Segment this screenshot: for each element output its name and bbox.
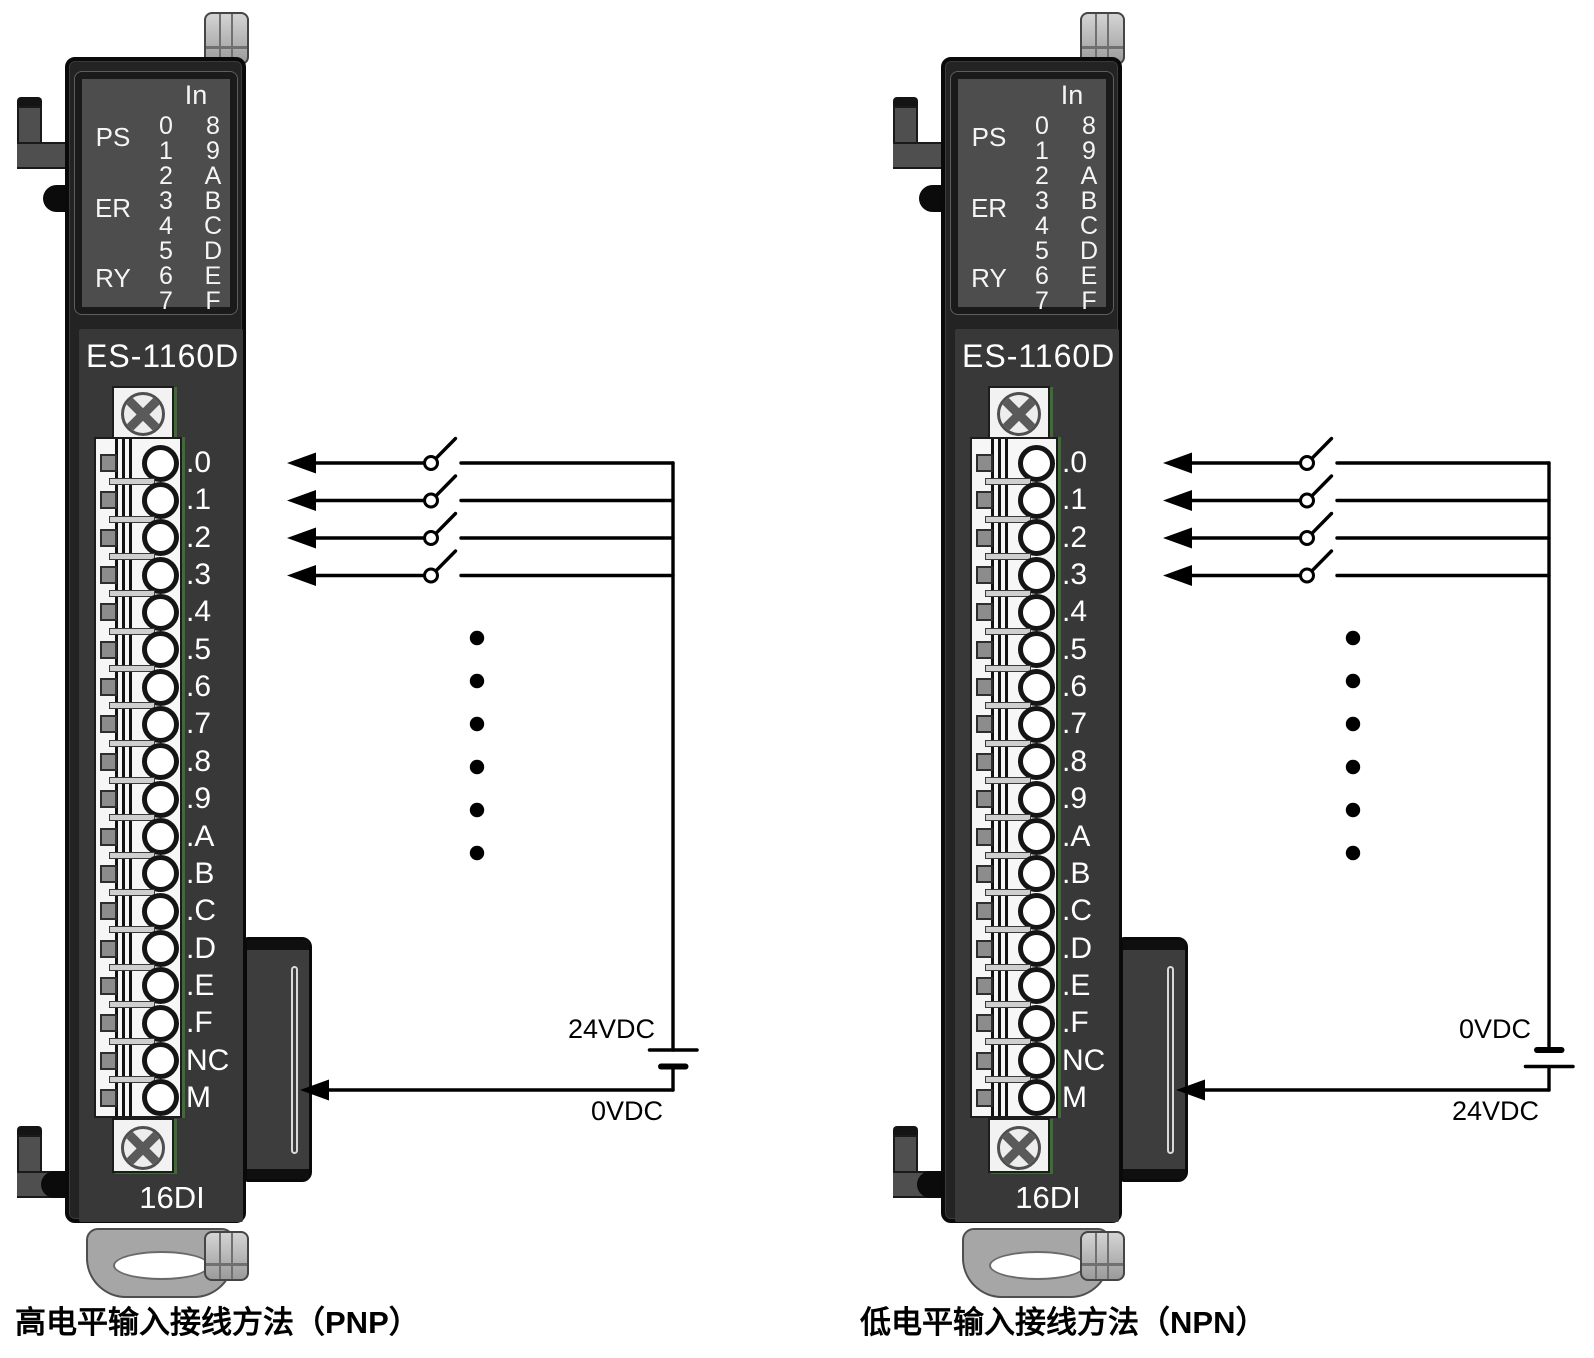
terminal-label: .1 [1062,480,1138,520]
terminal-clamp [976,603,993,621]
led-status-ry: RY [89,263,137,294]
terminal-divider [985,553,1031,560]
terminal-divider [985,852,1031,859]
terminal-divider [109,628,155,635]
led-indicator-panel: In PS ER RY 01234567 89ABCDEF [951,72,1113,314]
terminal-hole [1018,445,1055,482]
terminal-divider [109,889,155,896]
terminal-clamp [100,940,117,958]
terminal-hole [142,1042,179,1079]
terminal-divider [109,814,155,821]
terminal-hole [1018,482,1055,519]
terminal-clamp [976,678,993,696]
terminal-clamp [100,529,117,547]
terminal-divider [985,926,1031,933]
terminal-label: .1 [186,480,262,520]
terminal-divider [985,628,1031,635]
terminal-hole [142,1005,179,1042]
terminal-clamp [100,828,117,846]
terminal-clamp [100,491,117,509]
terminal-clamp [100,678,117,696]
terminal-hole [142,855,179,892]
led-column-8-F: 89ABCDEF [1065,72,1113,314]
terminal-label: .C [1062,891,1138,931]
terminal-divider [985,1076,1031,1083]
ellipsis-dot [470,760,484,774]
switch-hinge [425,494,438,507]
terminal-clamp [976,566,993,584]
terminal-clamp [100,1052,117,1070]
terminal-label: .A [1062,817,1138,857]
terminal-clamp [976,1052,993,1070]
terminal-hole [1018,706,1055,743]
terminal-clamp [100,454,117,472]
bottom-hook-hole [113,1251,210,1280]
terminal-hole [142,1079,179,1116]
terminal-divider [985,1038,1031,1045]
terminal-label: .2 [186,518,262,558]
terminal-clamp [976,1089,993,1107]
ellipsis-dot [1346,803,1360,817]
wiring-diagram-page: 高电平输入接线方法（PNP） 低电平输入接线方法（NPN） [0,0,1594,1358]
connector-lip [247,1169,309,1179]
terminal-hole [1018,669,1055,706]
terminal-hole [142,930,179,967]
terminal-divider [109,777,155,784]
terminal-label: .9 [1062,779,1138,819]
ellipsis-dot [1346,760,1360,774]
wiring-diagram-npn: In PS ER RY 01234567 89ABCDEF ES-1160D 1… [876,0,1594,1358]
terminal-clamp [100,641,117,659]
switch-hinge [425,532,438,545]
terminal-label: .8 [1062,742,1138,782]
terminal-hole [1018,631,1055,668]
terminal-hole [1018,930,1055,967]
terminal-label: .4 [186,592,262,632]
terminal-screw-top [988,386,1050,439]
screw-icon [997,1126,1041,1170]
terminal-clamp [100,566,117,584]
terminal-screw-bottom [988,1118,1050,1173]
terminal-label: .0 [186,443,262,483]
ellipsis-dot [470,674,484,688]
terminal-clamp [976,865,993,883]
terminal-label: .C [186,891,262,931]
terminal-clamp [976,529,993,547]
terminal-label: NC [186,1041,262,1081]
terminal-divider [109,1076,155,1083]
led-status-ps: PS [89,122,137,153]
terminal-divider [985,889,1031,896]
terminal-clamp [976,828,993,846]
switch-hinge [425,457,438,470]
terminal-divider [109,740,155,747]
terminal-label: .E [186,966,262,1006]
terminal-divider [985,590,1031,597]
connector-lip [1123,1169,1185,1179]
terminal-label: .7 [186,704,262,744]
input-arrowhead [287,528,316,549]
terminal-divider [109,926,155,933]
terminal-hole [142,893,179,930]
input-arrowhead [1163,528,1192,549]
led-status-ps: PS [965,122,1013,153]
terminal-clamp [100,902,117,920]
terminal-hole [142,519,179,556]
switch-blade [1312,439,1332,459]
ellipsis-dot [1346,674,1360,688]
led-column-8-F: 89ABCDEF [189,72,237,314]
switch-hinge [1301,494,1314,507]
terminal-divider [985,740,1031,747]
terminal-label: NC [1062,1041,1138,1081]
bottom-hook-hole [989,1251,1086,1280]
wiring-diagram-pnp: In PS ER RY 01234567 89ABCDEF ES-1160D 1… [0,0,718,1358]
terminal-divider [109,590,155,597]
terminal-clamp [100,1089,117,1107]
model-label: ES-1160D [962,338,1132,375]
terminal-hole [1018,818,1055,855]
module-type-label: 16DI [108,1180,236,1216]
switch-blade [1312,476,1332,496]
terminal-hole [142,706,179,743]
terminal-hole [142,594,179,631]
module-type-label: 16DI [984,1180,1112,1216]
terminal-divider [109,553,155,560]
terminal-divider [109,478,155,485]
mounting-bolt-bottom [204,1231,249,1281]
terminal-label: .B [1062,854,1138,894]
terminal-label: .6 [186,667,262,707]
terminal-label: .B [186,854,262,894]
terminal-hole [142,557,179,594]
screw-icon [121,392,165,436]
terminal-divider [985,478,1031,485]
terminal-label: .4 [1062,592,1138,632]
terminal-label: .8 [186,742,262,782]
model-label: ES-1160D [86,338,256,375]
terminal-divider [985,665,1031,672]
terminal-clamp [100,790,117,808]
led-status-ry: RY [965,263,1013,294]
terminal-label: .9 [186,779,262,819]
terminal-divider [985,964,1031,971]
terminal-divider [985,814,1031,821]
terminal-divider [985,1001,1031,1008]
terminal-clamp [100,977,117,995]
terminal-label: M [186,1078,262,1118]
switch-hinge [1301,457,1314,470]
terminal-clamp [976,1014,993,1032]
terminal-hole [1018,557,1055,594]
mounting-bolt-bottom [1080,1231,1125,1281]
terminal-clamp [976,641,993,659]
terminal-block [94,437,182,1118]
connector-slot [1167,966,1174,1154]
terminal-clamp [100,1014,117,1032]
terminal-clamp [976,753,993,771]
terminal-divider [109,702,155,709]
terminal-clamp [976,977,993,995]
terminal-clamp [100,715,117,733]
led-status-er: ER [965,193,1013,224]
led-digit: 7 [1018,287,1066,316]
terminal-label: M [1062,1078,1138,1118]
terminal-divider [109,516,155,523]
terminal-label: .D [186,929,262,969]
terminal-hole [1018,519,1055,556]
terminal-hole [1018,743,1055,780]
clip-arm [893,142,948,169]
terminal-hole [142,669,179,706]
terminal-divider [985,516,1031,523]
supply-label-top: 24VDC [530,1014,655,1045]
led-column-0-7: 01234567 [142,72,190,314]
terminal-hole [142,967,179,1004]
terminal-divider [109,665,155,672]
screw-icon [121,1126,165,1170]
terminal-hole [142,445,179,482]
supply-label-bottom: 24VDC [1421,1096,1539,1127]
terminal-divider [109,1001,155,1008]
ellipsis-dot [1346,717,1360,731]
input-arrowhead [1163,453,1192,474]
led-column-0-7: 01234567 [1018,72,1066,314]
terminal-clamp [976,902,993,920]
terminal-hole [142,631,179,668]
terminal-label: .D [1062,929,1138,969]
terminal-hole [142,781,179,818]
terminal-hole [1018,967,1055,1004]
terminal-hole [142,482,179,519]
terminal-label: .2 [1062,518,1138,558]
terminal-clamp [100,603,117,621]
ellipsis-dot [470,846,484,860]
terminal-clamp [976,940,993,958]
clip-arm [17,142,72,169]
terminal-hole [1018,781,1055,818]
terminal-label: .7 [1062,704,1138,744]
switch-hinge [1301,569,1314,582]
switch-blade [436,476,456,496]
supply-label-bottom: 0VDC [545,1096,663,1127]
terminal-clamp [976,454,993,472]
terminal-label: .A [186,817,262,857]
terminal-label: .F [186,1003,262,1043]
terminal-clamp [100,753,117,771]
switch-blade [436,514,456,534]
connector-slot [291,966,298,1154]
switch-blade [436,439,456,459]
terminal-label: .0 [1062,443,1138,483]
terminal-clamp [976,790,993,808]
terminal-hole [1018,594,1055,631]
input-arrowhead [287,490,316,511]
terminal-hole [1018,1079,1055,1116]
terminal-clamp [976,491,993,509]
terminal-screw-top [112,386,174,439]
terminal-divider [109,852,155,859]
screw-icon [997,392,1041,436]
terminal-label: .3 [1062,555,1138,595]
switch-blade [1312,551,1332,571]
terminal-clamp [976,715,993,733]
ellipsis-dot [1346,631,1360,645]
terminal-label: .E [1062,966,1138,1006]
terminal-label: .6 [1062,667,1138,707]
led-digit: F [1065,287,1113,316]
terminal-clamp [100,865,117,883]
switch-hinge [1301,532,1314,545]
terminal-screw-bottom [112,1118,174,1173]
led-indicator-panel: In PS ER RY 01234567 89ABCDEF [75,72,237,314]
terminal-divider [985,702,1031,709]
led-status-er: ER [89,193,137,224]
switch-blade [1312,514,1332,534]
terminal-hole [1018,1042,1055,1079]
terminal-hole [1018,855,1055,892]
ellipsis-dot [470,803,484,817]
terminal-hole [1018,893,1055,930]
terminal-divider [985,777,1031,784]
ellipsis-dot [470,631,484,645]
led-digit: F [189,287,237,316]
input-arrowhead [287,565,316,586]
terminal-label: .5 [186,630,262,670]
switch-hinge [425,569,438,582]
terminal-label: .5 [1062,630,1138,670]
terminal-divider [109,964,155,971]
terminal-hole [1018,1005,1055,1042]
ellipsis-dot [470,717,484,731]
supply-label-top: 0VDC [1406,1014,1531,1045]
terminal-label: .3 [186,555,262,595]
terminal-divider [109,1038,155,1045]
ellipsis-dot [1346,846,1360,860]
input-arrowhead [1163,490,1192,511]
input-arrowhead [1163,565,1192,586]
led-digit: 7 [142,287,190,316]
terminal-hole [142,743,179,780]
terminal-label: .F [1062,1003,1138,1043]
input-arrowhead [287,453,316,474]
terminal-block [970,437,1058,1118]
terminal-hole [142,818,179,855]
switch-blade [436,551,456,571]
